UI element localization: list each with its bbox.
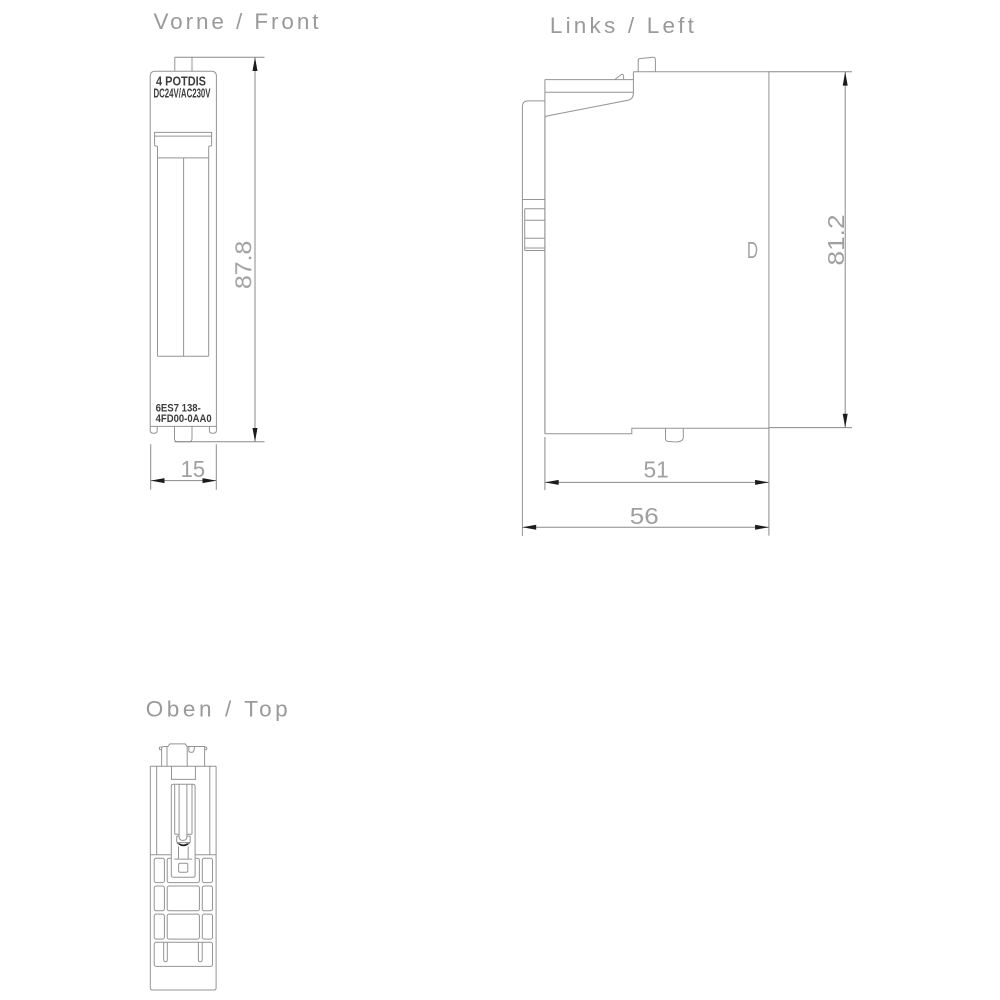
svg-text:87.8: 87.8 [230,241,256,289]
svg-text:51: 51 [644,456,669,482]
svg-text:15: 15 [181,456,206,482]
svg-text:4FD00-0AA0: 4FD00-0AA0 [156,413,212,425]
svg-text:56: 56 [630,503,659,529]
svg-text:D: D [747,237,758,263]
svg-text:Oben / Top: Oben / Top [146,696,288,721]
svg-text:81.2: 81.2 [823,215,849,266]
svg-text:DC24V/AC230V: DC24V/AC230V [154,86,211,100]
